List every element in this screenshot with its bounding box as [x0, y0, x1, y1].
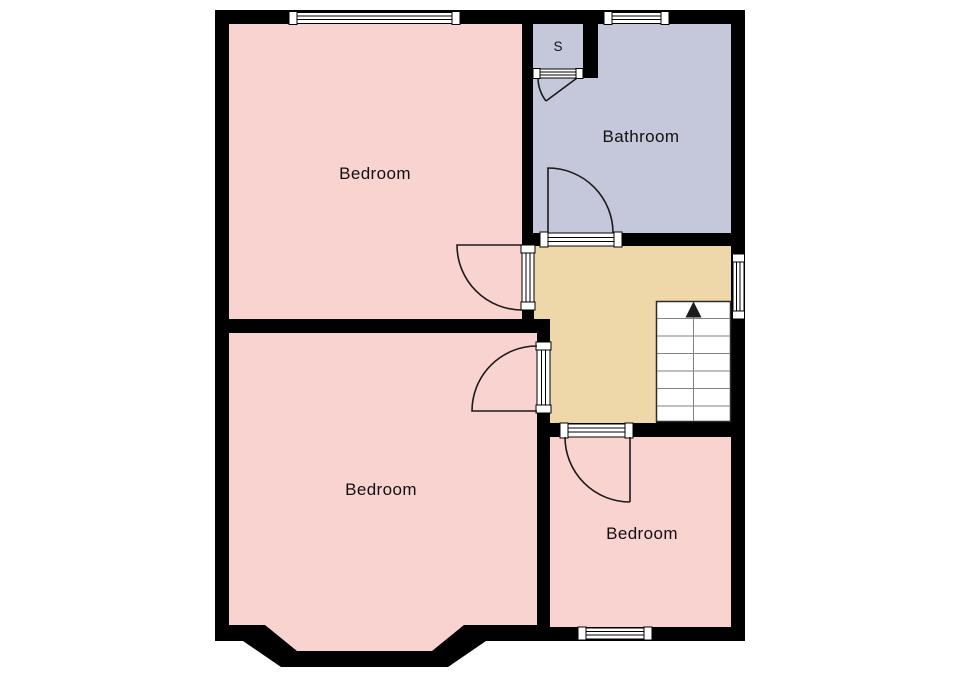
window-bedroom-small — [578, 627, 652, 640]
room-label-bedroom-back: Bedroom — [345, 480, 417, 499]
window-landing — [733, 254, 745, 319]
window-bathroom — [604, 12, 669, 25]
stairs — [657, 302, 731, 422]
room-label-bedroom-small: Bedroom — [606, 524, 678, 543]
window-bedroom-front — [289, 12, 460, 25]
room-label-storage-cupboard: S — [553, 39, 562, 54]
room-label-bathroom: Bathroom — [603, 127, 680, 146]
floor-plan-canvas: Bedroom Bathroom Bedroom Bedroom S — [0, 0, 960, 679]
floor-plan: Bedroom Bathroom Bedroom Bedroom S — [0, 0, 960, 679]
room-label-bedroom-front: Bedroom — [339, 164, 411, 183]
